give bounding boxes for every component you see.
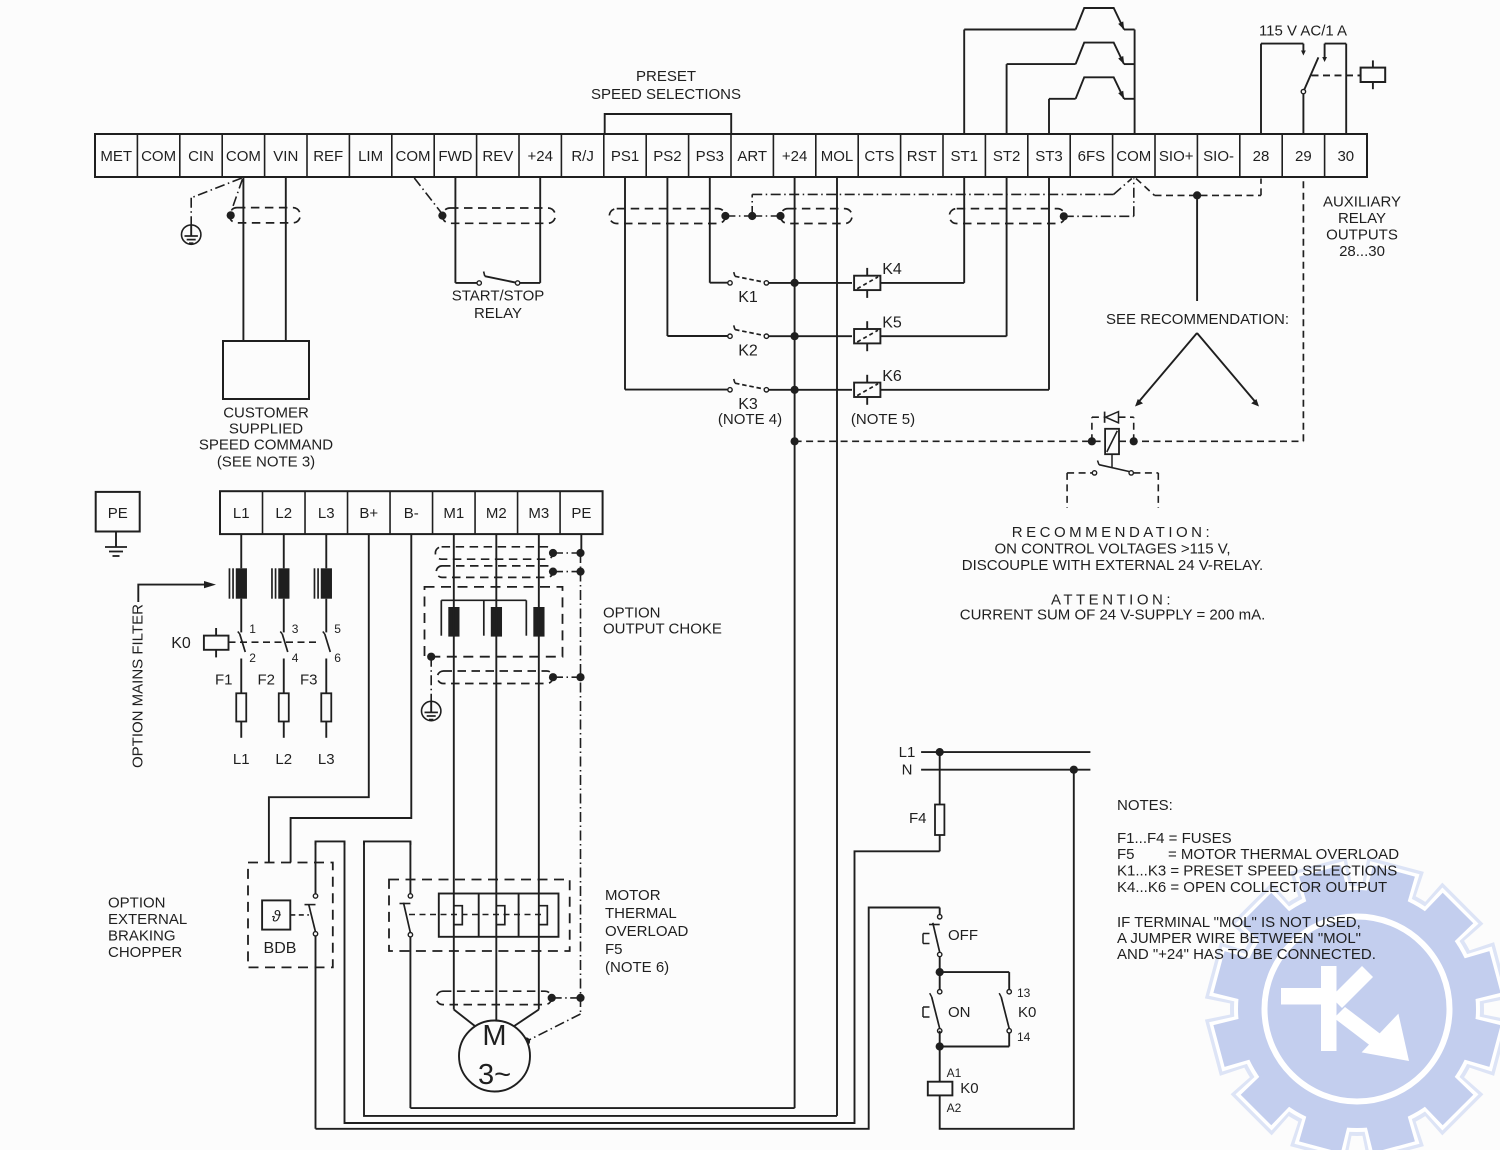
- svg-text:F1...F4 = FUSES: F1...F4 = FUSES: [1117, 830, 1232, 847]
- svg-text:THERMAL: THERMAL: [605, 905, 677, 922]
- svg-text:K1...K3 = PRESET SPEED SELECTI: K1...K3 = PRESET SPEED SELECTIONS: [1117, 863, 1397, 880]
- svg-text:DISCOUPLE WITH EXTERNAL 24 V-R: DISCOUPLE WITH EXTERNAL 24 V-RELAY.: [962, 557, 1263, 574]
- svg-text:2: 2: [249, 651, 256, 665]
- svg-text:30: 30: [1337, 148, 1354, 165]
- svg-text:PS2: PS2: [653, 148, 681, 165]
- svg-text:L2: L2: [275, 751, 292, 768]
- svg-text:1: 1: [249, 622, 256, 636]
- svg-text:M3: M3: [528, 505, 549, 522]
- svg-text:28: 28: [1253, 148, 1270, 165]
- svg-text:PE: PE: [108, 505, 128, 522]
- svg-text:OPTION: OPTION: [603, 605, 661, 622]
- svg-text:SIO+: SIO+: [1159, 148, 1194, 165]
- svg-text:115 V AC/1 A: 115 V AC/1 A: [1259, 23, 1347, 40]
- svg-text:F5: F5: [605, 941, 623, 958]
- svg-text:ST1: ST1: [950, 148, 978, 165]
- svg-text:SUPPLIED: SUPPLIED: [229, 421, 303, 438]
- svg-text:13: 13: [1017, 986, 1031, 1000]
- svg-text:R/J: R/J: [571, 148, 594, 165]
- svg-text:K4...K6 = OPEN COLLECTOR OUTPU: K4...K6 = OPEN COLLECTOR OUTPUT: [1117, 879, 1387, 896]
- svg-text:(NOTE 4): (NOTE 4): [718, 411, 782, 428]
- svg-text:A JUMPER WIRE BETWEEN "MOL": A JUMPER WIRE BETWEEN "MOL": [1117, 930, 1361, 947]
- svg-text:ST3: ST3: [1035, 148, 1063, 165]
- svg-text:= MOTOR THERMAL OVERLOAD: = MOTOR THERMAL OVERLOAD: [1168, 846, 1399, 863]
- svg-text:REF: REF: [313, 148, 343, 165]
- svg-text:PE: PE: [571, 505, 591, 522]
- svg-text:+24: +24: [782, 148, 807, 165]
- svg-text:RST: RST: [907, 148, 937, 165]
- svg-text:NOTES:: NOTES:: [1117, 797, 1173, 814]
- svg-text:K0: K0: [1018, 1004, 1036, 1021]
- svg-text:B+: B+: [359, 505, 378, 522]
- svg-text:CUSTOMER: CUSTOMER: [223, 405, 309, 422]
- svg-text:RELAY: RELAY: [474, 305, 522, 322]
- svg-text:(SEE NOTE 3): (SEE NOTE 3): [217, 453, 315, 470]
- svg-text:K2: K2: [738, 342, 758, 359]
- svg-text:LIM: LIM: [358, 148, 383, 165]
- svg-text:SPEED COMMAND: SPEED COMMAND: [199, 437, 333, 454]
- svg-text:F1: F1: [215, 672, 233, 689]
- svg-text:K0: K0: [960, 1080, 978, 1097]
- svg-text:N: N: [902, 762, 913, 779]
- svg-text:CIN: CIN: [188, 148, 214, 165]
- svg-text:MET: MET: [100, 148, 132, 165]
- svg-text:OUTPUTS: OUTPUTS: [1326, 227, 1398, 244]
- svg-text:K1: K1: [738, 289, 758, 306]
- svg-text:M2: M2: [486, 505, 507, 522]
- svg-text:L1: L1: [233, 505, 250, 522]
- svg-text:M: M: [482, 1020, 506, 1052]
- svg-text:REV: REV: [482, 148, 513, 165]
- svg-text:COM: COM: [1116, 148, 1151, 165]
- svg-text:6: 6: [334, 651, 341, 665]
- svg-text:F4: F4: [909, 810, 927, 827]
- svg-text:RECOMMENDATION:: RECOMMENDATION:: [1012, 524, 1213, 541]
- svg-text:(NOTE 6): (NOTE 6): [605, 959, 669, 976]
- svg-text:BDB: BDB: [264, 940, 297, 957]
- svg-text:MOTOR: MOTOR: [605, 887, 661, 904]
- svg-text:3~: 3~: [478, 1059, 511, 1091]
- svg-text:K5: K5: [882, 314, 902, 331]
- svg-text:F2: F2: [258, 672, 276, 689]
- svg-text:K6: K6: [882, 368, 902, 385]
- svg-text:K4: K4: [882, 261, 902, 278]
- svg-text:VIN: VIN: [273, 148, 298, 165]
- svg-text:FWD: FWD: [438, 148, 472, 165]
- svg-text:14: 14: [1017, 1030, 1031, 1044]
- svg-text:SPEED SELECTIONS: SPEED SELECTIONS: [591, 86, 741, 103]
- svg-text:AUXILIARY: AUXILIARY: [1323, 194, 1401, 211]
- svg-text:SEE RECOMMENDATION:: SEE RECOMMENDATION:: [1106, 311, 1289, 328]
- svg-text:SIO-: SIO-: [1203, 148, 1234, 165]
- svg-text:L2: L2: [275, 505, 292, 522]
- svg-text:COM: COM: [226, 148, 261, 165]
- svg-text:ART: ART: [737, 148, 767, 165]
- svg-text:CURRENT SUM OF 24 V-SUPPLY = 2: CURRENT SUM OF 24 V-SUPPLY = 200 mA.: [960, 607, 1266, 624]
- svg-text:START/STOP: START/STOP: [452, 287, 545, 304]
- svg-text:M1: M1: [443, 505, 464, 522]
- svg-text:OPTION: OPTION: [108, 895, 166, 912]
- svg-text:PRESET: PRESET: [636, 68, 696, 85]
- svg-text:ϑ: ϑ: [272, 909, 282, 926]
- svg-text:MOL: MOL: [821, 148, 854, 165]
- svg-text:L1: L1: [899, 744, 916, 761]
- svg-text:4: 4: [292, 651, 299, 665]
- svg-text:ON: ON: [948, 1004, 971, 1021]
- svg-text:L1: L1: [233, 751, 250, 768]
- svg-text:PS1: PS1: [611, 148, 639, 165]
- svg-text:OVERLOAD: OVERLOAD: [605, 923, 689, 940]
- svg-text:B-: B-: [404, 505, 419, 522]
- svg-text:3: 3: [292, 622, 299, 636]
- svg-text:ON CONTROL VOLTAGES >115 V,: ON CONTROL VOLTAGES >115 V,: [994, 541, 1230, 558]
- svg-text:29: 29: [1295, 148, 1312, 165]
- svg-text:BRAKING: BRAKING: [108, 928, 176, 945]
- svg-text:6FS: 6FS: [1078, 148, 1106, 165]
- svg-text:5: 5: [334, 622, 341, 636]
- svg-text:CHOPPER: CHOPPER: [108, 944, 182, 961]
- svg-text:AND "+24" HAS TO BE CONNECTED.: AND "+24" HAS TO BE CONNECTED.: [1117, 946, 1376, 963]
- svg-text:(NOTE 5): (NOTE 5): [851, 411, 915, 428]
- svg-text:CTS: CTS: [864, 148, 894, 165]
- svg-text:RELAY: RELAY: [1338, 210, 1386, 227]
- svg-text:OPTION MAINS FILTER: OPTION MAINS FILTER: [130, 604, 147, 768]
- svg-text:OUTPUT CHOKE: OUTPUT CHOKE: [603, 621, 722, 638]
- svg-text:A1: A1: [947, 1066, 962, 1080]
- svg-text:+24: +24: [527, 148, 552, 165]
- svg-text:COM: COM: [396, 148, 431, 165]
- svg-text:F5: F5: [1117, 846, 1135, 863]
- svg-text:EXTERNAL: EXTERNAL: [108, 911, 187, 928]
- svg-text:L3: L3: [318, 505, 335, 522]
- svg-text:28...30: 28...30: [1339, 243, 1385, 260]
- svg-text:A2: A2: [947, 1101, 962, 1115]
- svg-text:L3: L3: [318, 751, 335, 768]
- svg-text:ST2: ST2: [993, 148, 1021, 165]
- svg-text:F3: F3: [300, 672, 318, 689]
- svg-text:K0: K0: [171, 635, 191, 652]
- svg-text:COM: COM: [141, 148, 176, 165]
- svg-text:PS3: PS3: [696, 148, 724, 165]
- svg-text:OFF: OFF: [948, 927, 978, 944]
- svg-text:IF TERMINAL "MOL" IS NOT USED,: IF TERMINAL "MOL" IS NOT USED,: [1117, 914, 1361, 931]
